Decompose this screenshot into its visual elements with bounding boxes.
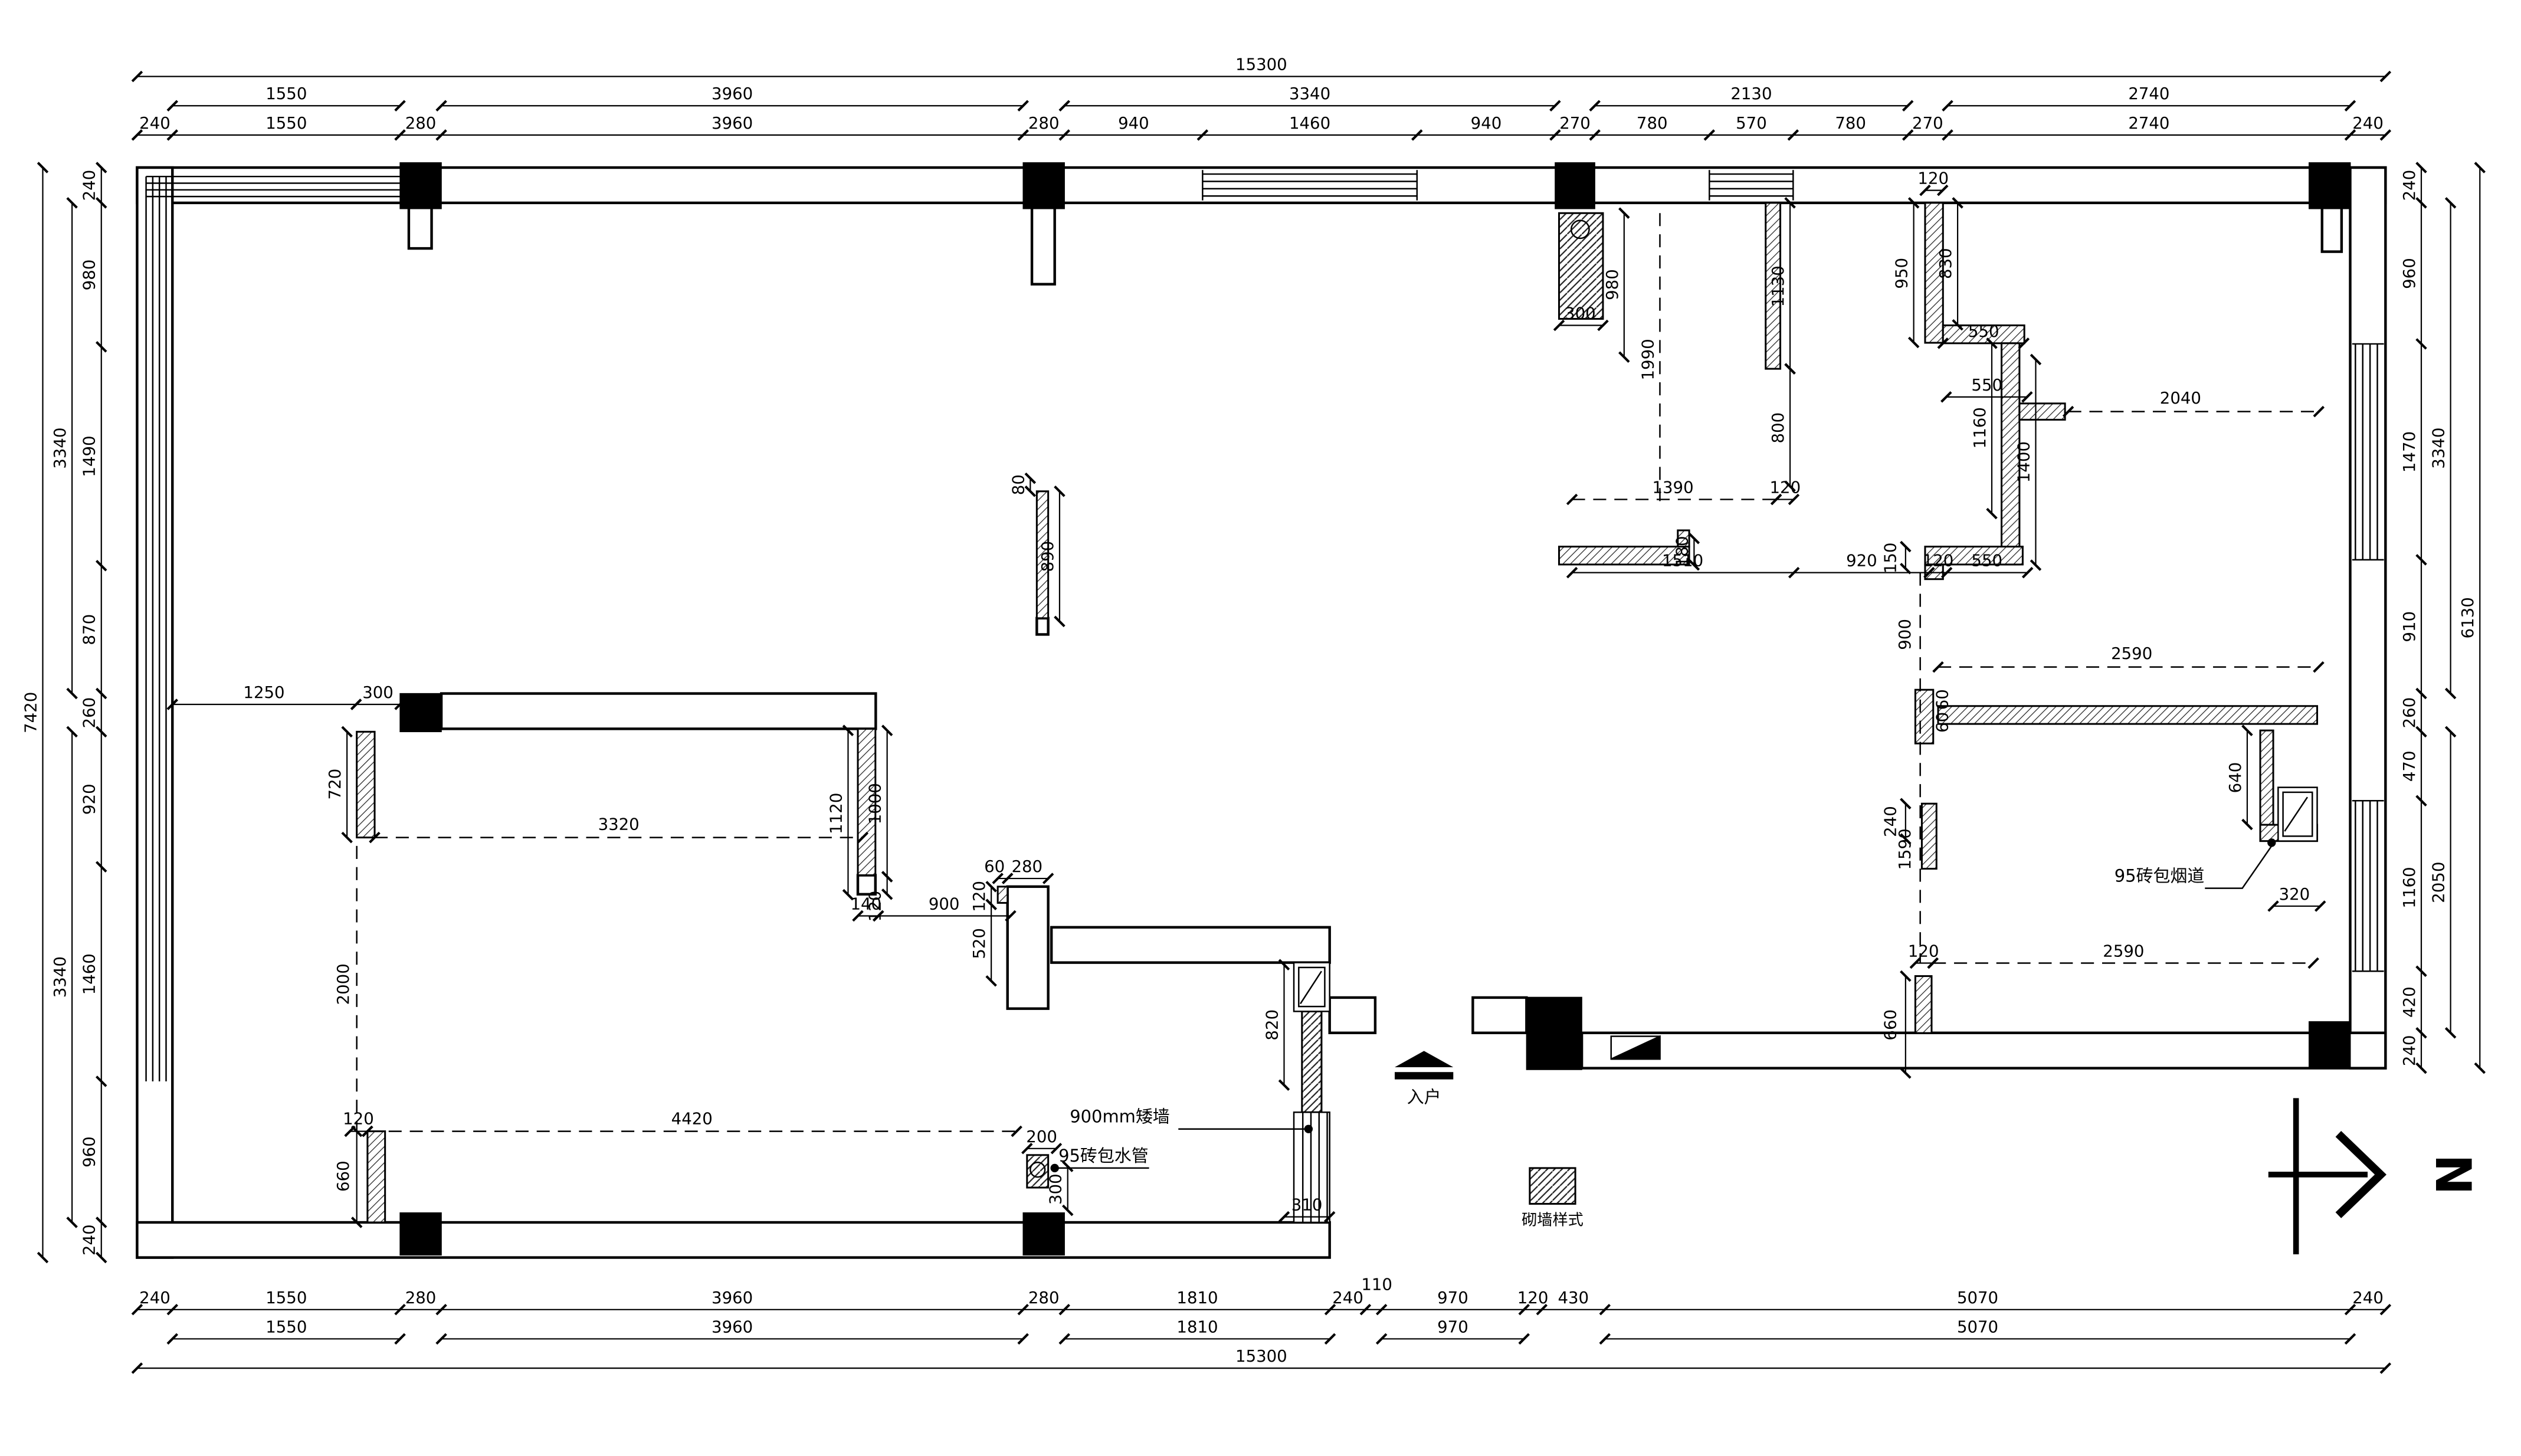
dim-text: 940 [1471, 113, 1502, 133]
dim-text: 800 [1768, 412, 1788, 444]
dim-text: 1400 [2014, 441, 2033, 483]
vestibule-window-symbol [1294, 963, 1330, 1012]
wall-vestibule-a [1330, 998, 1375, 1033]
dim-text: 920 [1846, 551, 1877, 570]
dim-text: 80 [1008, 474, 1028, 495]
right-window-1470 [2352, 344, 2384, 560]
column [1023, 163, 1064, 209]
dim-text: 1550 [265, 1288, 307, 1307]
dim-text: 640 [2225, 762, 2245, 793]
dim-text: 950 [1892, 258, 1912, 289]
column [2309, 1022, 2350, 1067]
dim-text: 1810 [1176, 1288, 1218, 1307]
dim-text: 1250 [243, 683, 284, 702]
dim-text: 1490 [80, 435, 99, 477]
wall-pier-t [1008, 887, 1048, 1009]
dim-text: 920 [80, 783, 99, 815]
label-legend: 砌墙样式 [1522, 1211, 1584, 1229]
column [400, 163, 441, 209]
new-wall [368, 1132, 385, 1222]
dim-text: 900 [1895, 619, 1914, 650]
pier-c2 [1032, 203, 1055, 284]
leader-dot [1051, 1164, 1059, 1172]
dim-text: 60 [984, 857, 1005, 876]
dim-text: 1000 [866, 783, 885, 824]
dim-text: 1120 [826, 793, 845, 834]
column [1023, 1213, 1064, 1255]
dim-text: 280 [405, 113, 437, 133]
dim-text: 3320 [598, 814, 640, 834]
threshold-symbol [1611, 1037, 1660, 1060]
dim-text: 60 [1933, 689, 1952, 710]
dim-text: 980 [1602, 269, 1622, 300]
dim-text: 2740 [2128, 113, 2169, 133]
new-wall [2020, 404, 2065, 420]
dim-text: 260 [2399, 697, 2419, 729]
top-window-570 [1709, 170, 1793, 201]
dim-text: 430 [1558, 1288, 1589, 1307]
dim-text: 280 [1011, 857, 1043, 876]
dim-text: 940 [1118, 113, 1149, 133]
dim-text: 1130 [1768, 265, 1788, 307]
dim-text: 300 [1046, 1173, 1066, 1205]
dim-text: 1460 [1289, 113, 1330, 133]
wall-interior-long [441, 694, 876, 729]
dim-text: 660 [1880, 1009, 1900, 1041]
dim-text: 2050 [2429, 862, 2448, 903]
dim-text: 3960 [712, 84, 753, 103]
label-low-wall: 900mm矮墙 [1070, 1107, 1169, 1127]
wall-left [137, 168, 172, 1258]
new-wall [1938, 706, 2317, 724]
dim-text: 780 [1835, 113, 1866, 133]
dim-text: 470 [2399, 750, 2419, 782]
dim-text: 1990 [1638, 339, 1657, 380]
dim-text: 240 [139, 1288, 171, 1307]
dim-text: 120 [1908, 941, 1939, 960]
wall-end-cap2 [1037, 618, 1048, 635]
dim-text: 120 [1917, 169, 1949, 188]
pier-c4 [2322, 203, 2342, 252]
label-flue: 95砖包烟道 [2115, 866, 2205, 886]
column [400, 694, 441, 732]
dim-text: 140 [850, 894, 881, 913]
dim-text: 60 [1933, 712, 1952, 733]
new-wall [1922, 804, 1936, 868]
flue-wall [2260, 730, 2273, 825]
dim-text: 240 [2399, 1035, 2419, 1067]
dim-text: 3340 [50, 428, 70, 469]
dim-text: 1550 [265, 84, 307, 103]
dim-text: 980 [80, 260, 99, 291]
legend-swatch [1530, 1168, 1575, 1204]
dim-text: 1460 [80, 953, 99, 995]
dim-text: 310 [1291, 1195, 1323, 1215]
column [2309, 163, 2350, 209]
dim-text: 120 [1923, 551, 1954, 570]
dim-text: 960 [80, 1136, 99, 1168]
dim-text: 300 [362, 683, 394, 702]
north-letter: N [2424, 1154, 2481, 1195]
label-entry: 入户 [1407, 1087, 1441, 1107]
dim-text: 2590 [2103, 941, 2144, 960]
dim-text: 270 [1912, 113, 1943, 133]
dim-text: 890 [1038, 541, 1057, 572]
dim-text: 280 [1028, 113, 1060, 133]
dim-text: 720 [325, 769, 345, 800]
column [400, 1213, 441, 1255]
dim-text: 820 [1262, 1009, 1281, 1041]
dim-text: 4420 [671, 1109, 713, 1128]
dim-text: 550 [1971, 551, 2002, 570]
dim-text: 870 [80, 614, 99, 645]
dim-text: 120 [343, 1109, 374, 1128]
dim-text: 120 [1770, 478, 1801, 497]
dim-text: 1550 [265, 113, 307, 133]
floor-plan-canvas: 15300 1550 3960 3340 2130 2740 240 1550 … [0, 0, 2521, 1456]
dim-text: 2000 [333, 963, 353, 1005]
dim-text: 240 [139, 113, 171, 133]
dim-text: 15300 [1235, 1346, 1287, 1366]
dim-text: 570 [1736, 113, 1767, 133]
dim-text: 910 [2399, 611, 2419, 642]
dim-text: 1510 [1662, 551, 1703, 570]
dim-text: 3960 [712, 1317, 753, 1336]
dim-text: 2130 [1730, 84, 1772, 103]
flue-window-symbol [2278, 788, 2317, 841]
label-water-pipe: 95砖包水管 [1058, 1146, 1149, 1166]
dim-text: 320 [2279, 884, 2310, 904]
dim-text: 110 [1361, 1275, 1392, 1294]
dim-text: 260 [80, 697, 99, 729]
dim-text: 280 [1028, 1288, 1060, 1307]
new-wall [1915, 690, 1933, 743]
right-window-1160 [2352, 801, 2384, 971]
pier-c1 [409, 203, 432, 248]
dim-text: 780 [1637, 113, 1668, 133]
dim-text: 1160 [2399, 867, 2419, 908]
dim-text: 5070 [1957, 1317, 1998, 1336]
dim-text: 1810 [1176, 1317, 1218, 1336]
wall-bottom-right [1582, 1033, 2385, 1068]
column [1555, 163, 1595, 209]
dim-text: 200 [1026, 1127, 1057, 1146]
dim-text: 270 [1559, 113, 1591, 133]
dim-text: 240 [2399, 170, 2419, 201]
dim-text: 1470 [2399, 431, 2419, 473]
dim-text: 3340 [1289, 84, 1330, 103]
leader-dot [1304, 1125, 1313, 1133]
dim-text: 960 [2399, 258, 2419, 289]
new-wall [1915, 976, 1932, 1034]
low-wall [1302, 1011, 1322, 1112]
dim-text: 3340 [2429, 428, 2448, 469]
dim-text: 240 [80, 170, 99, 201]
dim-text: 120 [1517, 1288, 1549, 1307]
dim-text: 240 [80, 1224, 99, 1255]
leader-dot [2267, 838, 2276, 847]
dim-text: 1160 [1970, 407, 1989, 448]
column [1526, 997, 1582, 1070]
dim-text: 6130 [2458, 597, 2477, 638]
dim-text: 240 [1332, 1288, 1363, 1307]
dim-text: 1550 [265, 1317, 307, 1336]
dim-text: 550 [1971, 375, 2002, 395]
wall-vestibule-b [1473, 998, 1526, 1033]
dim-text: 3960 [712, 1288, 753, 1307]
dim-text: 550 [1968, 322, 1999, 341]
new-wall [998, 887, 1008, 903]
dim-text: 150 [1880, 543, 1900, 574]
dim-text: 2740 [2128, 84, 2169, 103]
top-window-1460 [1202, 170, 1417, 201]
dim-text: 1390 [1652, 478, 1693, 497]
dim-text: 280 [405, 1288, 437, 1307]
dim-text: 1590 [1895, 828, 1914, 870]
dim-text: 15300 [1235, 55, 1287, 74]
dim-text: 240 [2352, 1288, 2384, 1307]
dim-text: 240 [2352, 113, 2384, 133]
new-wall [357, 732, 375, 837]
dim-text: 7420 [21, 692, 40, 733]
dim-text: 3340 [50, 956, 70, 998]
dim-text: 660 [333, 1160, 353, 1192]
dim-text: 300 [1565, 303, 1596, 323]
dim-text: 3960 [712, 113, 753, 133]
dim-text: 420 [2399, 986, 2419, 1018]
dim-text: 900 [929, 894, 960, 913]
wall-interior-hall [1051, 927, 1330, 963]
dim-text: 120 [969, 881, 989, 912]
dim-text: 5070 [1957, 1288, 1998, 1307]
dim-text: 830 [1936, 248, 1955, 279]
wall-bottom-left [137, 1222, 1329, 1258]
dim-text: 970 [1437, 1317, 1468, 1336]
dim-text: 2590 [2111, 644, 2152, 663]
dim-text: 520 [969, 928, 989, 959]
dim-text: 970 [1437, 1288, 1468, 1307]
dim-text: 2040 [2160, 388, 2201, 408]
